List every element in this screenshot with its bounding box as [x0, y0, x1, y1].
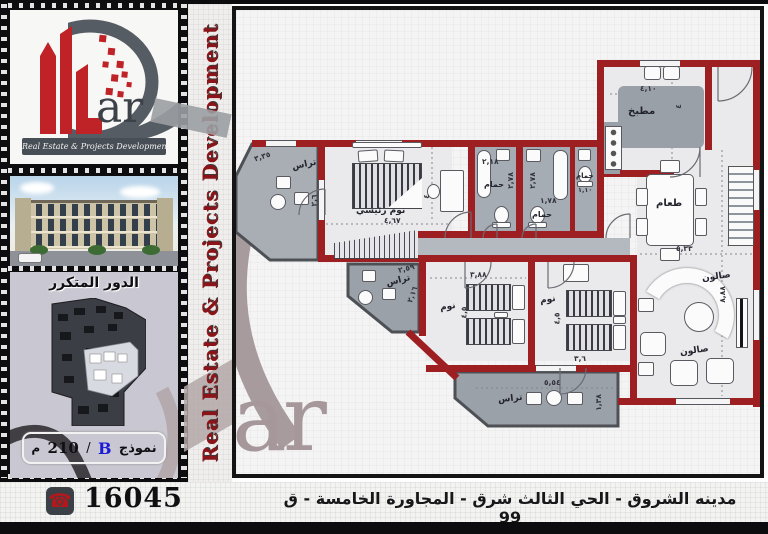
chair	[660, 160, 680, 173]
round-table	[358, 290, 373, 305]
model-area: 210	[48, 439, 79, 457]
bottom-border	[0, 522, 768, 534]
label-bath3-size: ١,١٠	[578, 186, 592, 194]
logo-ar-text: ar	[96, 86, 143, 130]
wall-segment	[468, 147, 475, 238]
chair	[636, 188, 648, 206]
cloud	[20, 182, 54, 194]
phone-icon: ☎	[46, 487, 74, 515]
wall-segment	[410, 231, 604, 238]
model-letter: B	[98, 439, 112, 458]
corridor-floor	[410, 238, 630, 255]
wall-segment	[419, 262, 426, 336]
wall-segment	[630, 262, 637, 405]
label-bath1-depth: ٢,٧٨	[506, 172, 515, 189]
label-terrace3-width: ٥,٥٤	[544, 378, 561, 387]
building-wing	[15, 198, 31, 252]
single-bed	[466, 284, 511, 311]
building-photo	[10, 176, 178, 266]
wall-segment	[597, 60, 604, 238]
toilet-tank	[528, 222, 547, 228]
label-bedroom3-depth: ٤,٥	[553, 312, 562, 324]
staircase	[728, 166, 754, 246]
wall-segment	[528, 262, 535, 372]
label-bedroom2-width: ٣,٨٨	[470, 270, 487, 279]
dining-table	[646, 174, 694, 246]
highlighted-unit	[84, 342, 138, 396]
single-bed	[466, 318, 511, 345]
label-terrace1-depth: ٢,٦	[310, 194, 319, 206]
kitchen-sink	[644, 66, 661, 80]
building-wing	[157, 198, 173, 252]
label-kitchen: مطبخ	[628, 106, 655, 117]
label-salon-depth: ٨,٨٨	[718, 286, 727, 303]
single-bed	[566, 290, 612, 317]
sink	[578, 149, 591, 161]
nightstand	[494, 312, 508, 318]
window	[753, 170, 760, 210]
armchair	[706, 358, 734, 384]
kitchen-sink	[663, 66, 680, 80]
label-bedroom2-depth: ٤,٥	[460, 306, 469, 318]
label-bedroom2: نوم	[439, 301, 456, 313]
window	[536, 365, 576, 372]
logo-tagline: Real Estate & Projects Development	[22, 138, 166, 155]
label-bath3: حمام	[576, 172, 594, 180]
pillow	[358, 149, 379, 162]
siteplan-panel: الدور المتكرر نموذج B / 210	[10, 272, 178, 478]
wall-segment	[516, 147, 523, 231]
model-separator: /	[86, 441, 90, 456]
building-floor	[24, 219, 164, 233]
wall-segment	[705, 67, 712, 150]
label-bedroom3-width: ٣,٦	[574, 354, 586, 363]
pillow	[613, 291, 626, 316]
bush	[142, 245, 160, 255]
chair	[382, 288, 396, 300]
armchair	[640, 332, 666, 356]
wall-segment	[753, 60, 760, 407]
round-table	[546, 390, 562, 406]
label-bath2-width: ١,٧٨	[540, 196, 557, 205]
vertical-banner-text: Real Estate & Projects Development	[198, 23, 222, 462]
pillow	[512, 319, 525, 344]
label-terrace3-depth: ١,٣٨	[594, 394, 603, 411]
nightstand	[613, 316, 626, 324]
label-master-bedroom: نوم رئيسي	[356, 206, 405, 216]
label-dining-width: ٥,٣٣	[676, 244, 693, 253]
chair	[636, 218, 648, 236]
label-kitchen-width: ٤,١٠	[640, 84, 657, 93]
car	[18, 253, 42, 263]
tv-unit	[736, 298, 748, 348]
desk	[440, 170, 464, 212]
label-master-width: ٤,٦٧	[384, 216, 401, 225]
label-bath2-depth: ٢,٧٨	[528, 172, 537, 189]
side-table	[638, 362, 654, 376]
label-bath2: حمام	[532, 210, 552, 219]
wall-segment	[570, 147, 575, 231]
side-table	[638, 298, 654, 312]
phone-number: 16045	[84, 483, 183, 514]
model-info-box: نموذج B / 210 م	[22, 432, 166, 464]
chair	[567, 392, 583, 405]
company-logo: ar Real Estate & Projects Development	[10, 10, 178, 164]
bush	[88, 245, 106, 255]
chair	[526, 392, 542, 405]
blanket-fold	[388, 178, 422, 208]
wall-segment	[252, 140, 604, 147]
single-bed	[566, 324, 612, 351]
desk	[563, 264, 589, 282]
building-floor	[24, 204, 164, 218]
label-kitchen-depth: ٤	[674, 104, 683, 109]
film-perforation	[8, 266, 180, 271]
sidebar: ar Real Estate & Projects Development ال…	[0, 0, 188, 482]
toilet-tank	[492, 222, 511, 228]
pillow	[512, 285, 525, 310]
siteplan-thumbnail	[40, 298, 146, 426]
chair	[294, 192, 309, 205]
film-perforation	[1, 4, 7, 478]
label-dining: طعام	[656, 198, 682, 209]
label-bath1: حمام	[484, 180, 504, 189]
vertical-banner: Real Estate & Projects Development	[188, 4, 232, 482]
building-render	[24, 200, 164, 249]
coffee-table	[684, 302, 714, 332]
film-perforation	[8, 3, 180, 8]
typical-floor-title: الدور المتكرر	[10, 275, 178, 291]
bed-headboard	[352, 142, 422, 148]
chair	[695, 218, 707, 236]
wall-segment	[426, 365, 637, 372]
sink	[526, 149, 541, 162]
window	[676, 398, 730, 405]
kitchen-counter	[618, 86, 704, 148]
cloud	[120, 186, 160, 198]
label-master-depth: ٤	[422, 194, 431, 199]
label-bath1-width: ٢,١٨	[482, 157, 499, 166]
chair	[362, 270, 376, 282]
window	[266, 140, 296, 147]
stove	[605, 126, 622, 170]
entry-floor	[712, 67, 753, 150]
model-label: نموذج	[119, 441, 157, 456]
floorplan-canvas: ar	[232, 6, 764, 478]
label-bedroom3: نوم	[539, 294, 556, 306]
armchair	[670, 360, 698, 386]
chair	[276, 176, 291, 189]
pillow	[613, 325, 626, 350]
window	[753, 290, 760, 340]
round-table	[270, 194, 286, 210]
pillow	[384, 149, 405, 162]
window	[318, 180, 325, 220]
film-perforation	[8, 168, 180, 173]
chair	[695, 188, 707, 206]
model-area-unit: م	[31, 441, 40, 455]
bathtub	[553, 150, 568, 200]
